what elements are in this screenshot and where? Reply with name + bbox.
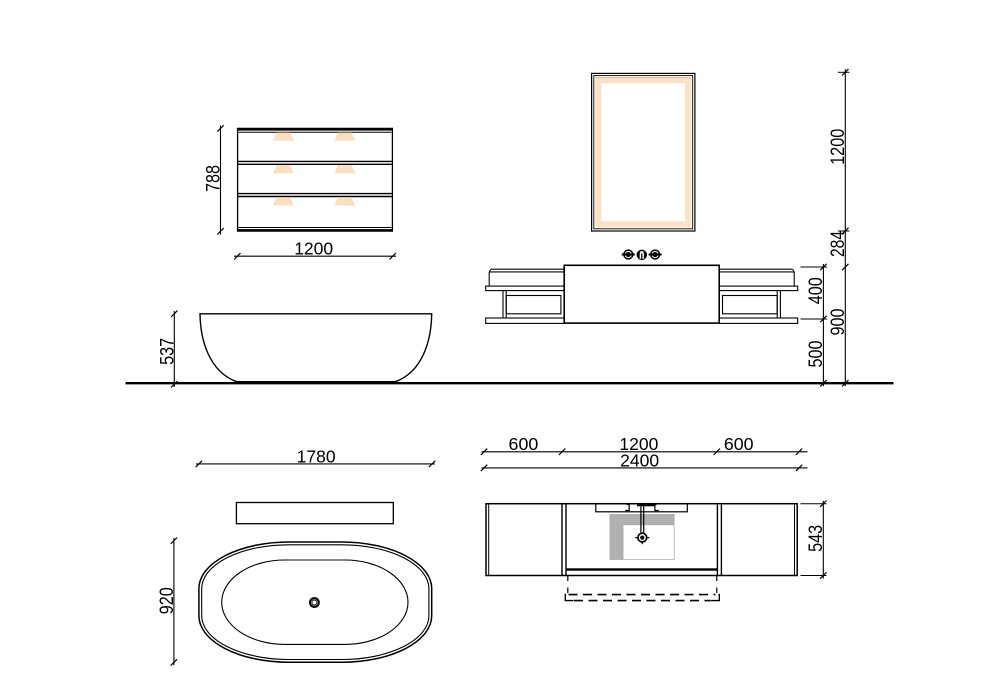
svg-text:600: 600 bbox=[509, 434, 539, 454]
svg-text:400: 400 bbox=[806, 277, 827, 304]
svg-text:2400: 2400 bbox=[620, 450, 659, 470]
svg-text:543: 543 bbox=[806, 525, 827, 552]
svg-text:500: 500 bbox=[806, 341, 827, 368]
svg-text:788: 788 bbox=[203, 165, 224, 192]
svg-text:900: 900 bbox=[828, 309, 849, 336]
svg-text:920: 920 bbox=[157, 587, 178, 614]
svg-text:537: 537 bbox=[157, 338, 178, 365]
svg-text:1200: 1200 bbox=[294, 238, 333, 258]
svg-text:1780: 1780 bbox=[297, 446, 336, 466]
svg-text:1200: 1200 bbox=[828, 129, 849, 165]
svg-text:600: 600 bbox=[724, 434, 754, 454]
svg-text:284: 284 bbox=[828, 231, 849, 257]
